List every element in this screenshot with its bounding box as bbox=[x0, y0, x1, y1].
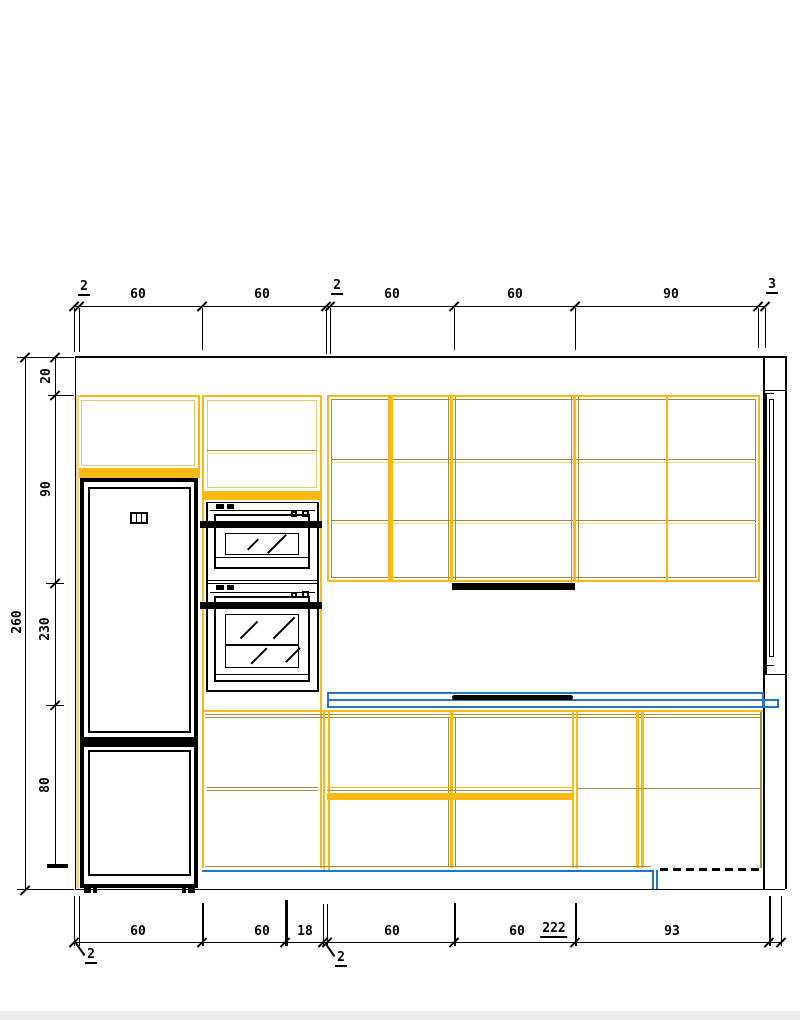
cabinet-divider bbox=[573, 397, 576, 580]
leader-label: 2 bbox=[85, 948, 97, 964]
drawer-line bbox=[327, 787, 572, 788]
oven-glass bbox=[225, 533, 299, 555]
fridge-foot bbox=[188, 888, 195, 893]
base-right-edge bbox=[760, 712, 762, 868]
base-top-line bbox=[205, 714, 761, 715]
tower-side-panel bbox=[202, 397, 204, 868]
oven-door-line bbox=[216, 674, 308, 675]
fridge-door-divider bbox=[84, 737, 194, 747]
drawer-line bbox=[578, 788, 760, 789]
tower-carcass-line bbox=[206, 690, 319, 692]
leader-label: 2 bbox=[335, 951, 347, 967]
dim-label: 222 bbox=[540, 922, 567, 938]
extension-line bbox=[326, 308, 327, 354]
oven-door-line bbox=[216, 557, 308, 558]
oven-control-strip bbox=[210, 510, 315, 511]
kitchen-elevation-drawing: 2 60 60 2 60 60 90 3 20 90 230 80 260 bbox=[0, 0, 800, 1020]
extension-line bbox=[47, 864, 68, 868]
cabinet-divider bbox=[571, 397, 572, 580]
panel-edge bbox=[773, 399, 774, 657]
extension-line bbox=[758, 308, 759, 348]
dim-label: 60 bbox=[254, 288, 270, 302]
base-divider bbox=[448, 717, 449, 866]
hob bbox=[452, 695, 573, 700]
drawer-line bbox=[207, 790, 318, 791]
panel-edge bbox=[764, 665, 774, 666]
tower-carcass-line bbox=[206, 502, 319, 503]
left-end-panel bbox=[76, 395, 79, 888]
extension-line bbox=[202, 308, 203, 350]
dim-line bbox=[74, 306, 766, 307]
drawer-line bbox=[207, 787, 318, 788]
oven-control-strip bbox=[210, 592, 315, 593]
panel-edge bbox=[764, 393, 767, 675]
dim-label: 60 bbox=[509, 925, 525, 939]
cabinet-divider bbox=[578, 397, 579, 580]
counter-end-panel bbox=[656, 870, 658, 889]
fridge-lower-door bbox=[88, 750, 191, 876]
base-divider bbox=[641, 712, 644, 868]
extension-line bbox=[765, 308, 766, 348]
wall-cabinet-inner-frame bbox=[207, 400, 317, 488]
dim-label: 60 bbox=[130, 288, 146, 302]
cabinet-shelf-line bbox=[207, 453, 317, 454]
panel-edge bbox=[769, 399, 770, 657]
oven-shelf-line bbox=[225, 644, 299, 646]
countertop-extension bbox=[763, 699, 779, 708]
tower-side-panel bbox=[320, 397, 322, 868]
extension-line bbox=[79, 308, 80, 352]
oven-vent-icon bbox=[227, 585, 234, 590]
leader-line bbox=[325, 943, 335, 957]
fridge-foot bbox=[84, 888, 91, 893]
cabinet-divider bbox=[666, 397, 668, 580]
dim-label: 2 bbox=[78, 280, 90, 296]
dim-label: 60 bbox=[130, 925, 146, 939]
fridge-foot bbox=[93, 888, 97, 893]
wall-cabinet-inner-frame bbox=[331, 399, 756, 578]
dim-label: 18 bbox=[297, 925, 313, 939]
dim-label: 60 bbox=[254, 925, 270, 939]
counter-end-panel bbox=[652, 870, 654, 889]
extension-line bbox=[454, 308, 455, 350]
dim-label: 93 bbox=[664, 925, 680, 939]
fridge-handle-icon bbox=[136, 513, 137, 523]
fridge-foot bbox=[182, 888, 186, 893]
base-bottom-line bbox=[202, 870, 652, 872]
base-divider bbox=[455, 717, 456, 866]
dim-label: 2 bbox=[331, 279, 343, 295]
dim-line bbox=[74, 942, 782, 943]
dim-label: 20 bbox=[40, 362, 54, 390]
cabinet-divider bbox=[450, 397, 453, 580]
right-outer-wall-line bbox=[785, 356, 787, 889]
cabinet-divider bbox=[455, 397, 456, 580]
dim-label: 90 bbox=[663, 288, 679, 302]
oven-vent-icon bbox=[227, 504, 234, 509]
base-bottom-line bbox=[205, 866, 651, 867]
cabinet-shelf-line bbox=[331, 462, 756, 463]
cabinet-shelf-line bbox=[207, 450, 317, 451]
oven-vent-icon bbox=[216, 585, 224, 590]
dim-label: 60 bbox=[507, 288, 523, 302]
wall-cabinet-bottom-rail bbox=[204, 491, 320, 499]
wall-cabinet-bottom-rail bbox=[78, 468, 198, 476]
cabinet-shelf-line bbox=[331, 520, 756, 521]
base-divider bbox=[572, 712, 574, 868]
plinth-dashed-line bbox=[660, 868, 763, 871]
dim-label: 60 bbox=[384, 288, 400, 302]
tower-carcass-line bbox=[206, 583, 319, 584]
oven-handle bbox=[200, 521, 322, 528]
tower-carcass-line bbox=[206, 580, 319, 581]
dim-line bbox=[55, 357, 56, 867]
dim-label: 260 bbox=[11, 602, 25, 642]
dim-label: 60 bbox=[384, 925, 400, 939]
oven-vent-icon bbox=[216, 504, 224, 509]
cabinet-shelf-line bbox=[331, 523, 756, 524]
oven-handle bbox=[200, 602, 322, 609]
base-top-rail bbox=[202, 710, 763, 712]
dim-line bbox=[25, 357, 26, 890]
extension-line bbox=[330, 308, 331, 354]
cabinet-divider bbox=[448, 397, 449, 580]
fridge-handle-icon bbox=[141, 513, 142, 523]
ceiling-line bbox=[75, 356, 787, 358]
cabinet-shelf-line bbox=[331, 459, 756, 460]
base-divider bbox=[576, 712, 578, 868]
cooker-hood bbox=[452, 583, 575, 590]
extension-line bbox=[575, 308, 576, 350]
right-wall-ledge bbox=[763, 390, 786, 391]
dim-label: 230 bbox=[39, 609, 53, 649]
drawer-line bbox=[327, 790, 572, 791]
drawer-rail bbox=[327, 793, 572, 800]
tower-carcass-line bbox=[206, 502, 208, 692]
dim-label: 90 bbox=[40, 475, 54, 503]
fridge-handle-icon bbox=[130, 512, 148, 524]
cabinet-divider bbox=[388, 397, 393, 580]
wall-cabinet-inner-frame bbox=[81, 400, 195, 466]
panel-edge bbox=[769, 656, 774, 657]
page-edge bbox=[0, 1011, 800, 1020]
panel-edge bbox=[769, 399, 774, 400]
dim-label: 80 bbox=[39, 771, 53, 799]
dim-label: 3 bbox=[766, 278, 778, 294]
tower-carcass-line bbox=[317, 502, 319, 692]
extension-line bbox=[74, 308, 75, 352]
panel-edge bbox=[764, 393, 774, 394]
base-divider bbox=[323, 712, 325, 870]
base-divider bbox=[328, 712, 330, 870]
base-top-line bbox=[205, 717, 761, 718]
base-divider bbox=[636, 712, 639, 868]
